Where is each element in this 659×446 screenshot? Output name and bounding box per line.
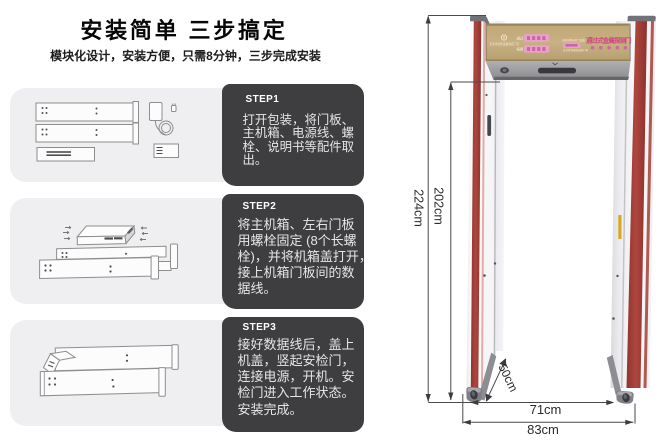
svg-text:报警: 报警 [517,47,524,52]
svg-text:东莞市安检设备制造厂家: 东莞市安检设备制造厂家 [490,42,520,46]
svg-text:224cm: 224cm [411,189,425,227]
svg-text:通过式金属探测门: 通过式金属探测门 [586,35,631,44]
svg-text:通过: 通过 [517,36,524,41]
svg-text:83cm: 83cm [527,422,559,437]
svg-text:71cm: 71cm [530,402,562,417]
svg-text:202cm: 202cm [432,187,446,225]
svg-text:安全检查通道设备厂家: 安全检查通道设备厂家 [563,48,589,52]
svg-text:金属探测安检门设备厂: 金属探测安检门设备厂 [562,38,588,42]
